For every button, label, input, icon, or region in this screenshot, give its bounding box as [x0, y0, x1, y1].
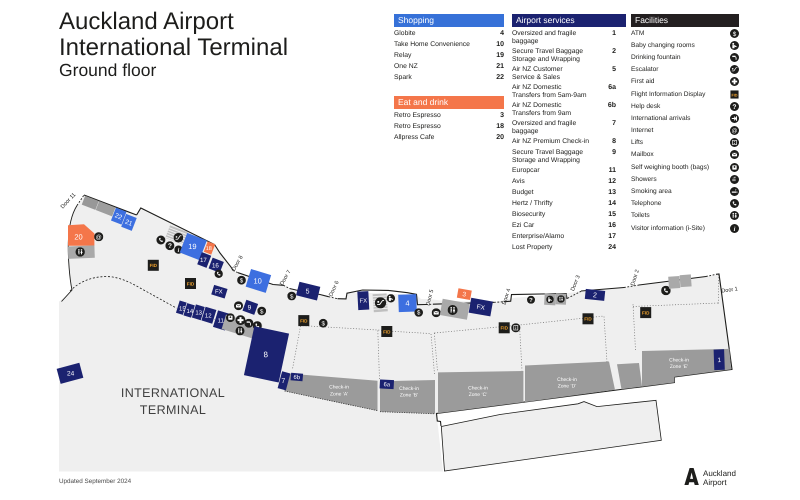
svg-text:TERMINAL: TERMINAL — [140, 403, 206, 417]
svg-text:Zone ‘A’: Zone ‘A’ — [330, 391, 348, 397]
svg-text:10: 10 — [253, 276, 261, 285]
svg-text:15: 15 — [179, 305, 186, 312]
svg-text:9: 9 — [248, 305, 252, 312]
svg-text:6a: 6a — [383, 381, 391, 388]
svg-text:FID: FID — [187, 281, 195, 286]
svg-text:Check-in: Check-in — [468, 386, 488, 392]
svg-text:Check-in: Check-in — [329, 385, 349, 391]
svg-text:Auckland: Auckland — [703, 469, 736, 478]
svg-text:Door 8: Door 8 — [231, 255, 244, 272]
svg-text:Zone ‘E’: Zone ‘E’ — [670, 364, 688, 370]
svg-text:1: 1 — [717, 357, 721, 364]
svg-text:Airport: Airport — [703, 478, 727, 487]
svg-text:FID: FID — [150, 263, 158, 268]
svg-text:3: 3 — [462, 291, 467, 299]
svg-text:Door 11: Door 11 — [60, 192, 77, 210]
svg-text:Door 1: Door 1 — [721, 286, 738, 294]
svg-text:Door 7: Door 7 — [279, 269, 292, 286]
svg-text:FID: FID — [300, 318, 308, 323]
svg-text:Check-in: Check-in — [669, 358, 689, 364]
svg-text:18: 18 — [206, 246, 212, 252]
svg-text:5: 5 — [306, 288, 310, 295]
svg-text:13: 13 — [195, 310, 202, 317]
svg-text:11: 11 — [218, 318, 225, 325]
svg-text:FID: FID — [500, 326, 508, 331]
svg-text:INTERNATIONAL: INTERNATIONAL — [121, 386, 225, 400]
svg-text:8: 8 — [263, 350, 269, 359]
svg-text:Check-in: Check-in — [399, 386, 419, 392]
svg-text:14: 14 — [187, 308, 194, 315]
svg-text:Zone ‘B’: Zone ‘B’ — [400, 393, 418, 399]
svg-text:FID: FID — [383, 329, 391, 334]
svg-text:Door 3: Door 3 — [570, 275, 582, 293]
svg-text:Zone ‘D’: Zone ‘D’ — [558, 384, 577, 390]
svg-text:Door 5: Door 5 — [425, 289, 435, 307]
svg-text:FX: FX — [359, 297, 367, 304]
svg-text:19: 19 — [188, 242, 196, 251]
svg-text:FX: FX — [476, 304, 486, 312]
svg-text:7: 7 — [281, 378, 285, 385]
svg-text:Check-in: Check-in — [557, 377, 577, 383]
svg-text:2: 2 — [593, 292, 598, 299]
svg-text:17: 17 — [200, 257, 207, 264]
svg-text:FX: FX — [215, 289, 223, 296]
svg-text:Zone ‘C’: Zone ‘C’ — [469, 392, 488, 398]
svg-text:22: 22 — [114, 212, 124, 221]
svg-text:Door 6: Door 6 — [328, 280, 340, 298]
svg-text:4: 4 — [405, 299, 409, 308]
svg-text:Door 2: Door 2 — [630, 269, 641, 287]
svg-text:21: 21 — [124, 219, 134, 228]
svg-text:FID: FID — [584, 317, 592, 322]
svg-text:16: 16 — [212, 262, 219, 269]
svg-text:12: 12 — [205, 312, 212, 319]
svg-text:24: 24 — [67, 371, 75, 378]
svg-text:6b: 6b — [293, 374, 300, 382]
svg-text:FID: FID — [642, 310, 650, 315]
svg-text:20: 20 — [74, 232, 82, 241]
svg-text:Door 4: Door 4 — [502, 288, 513, 306]
